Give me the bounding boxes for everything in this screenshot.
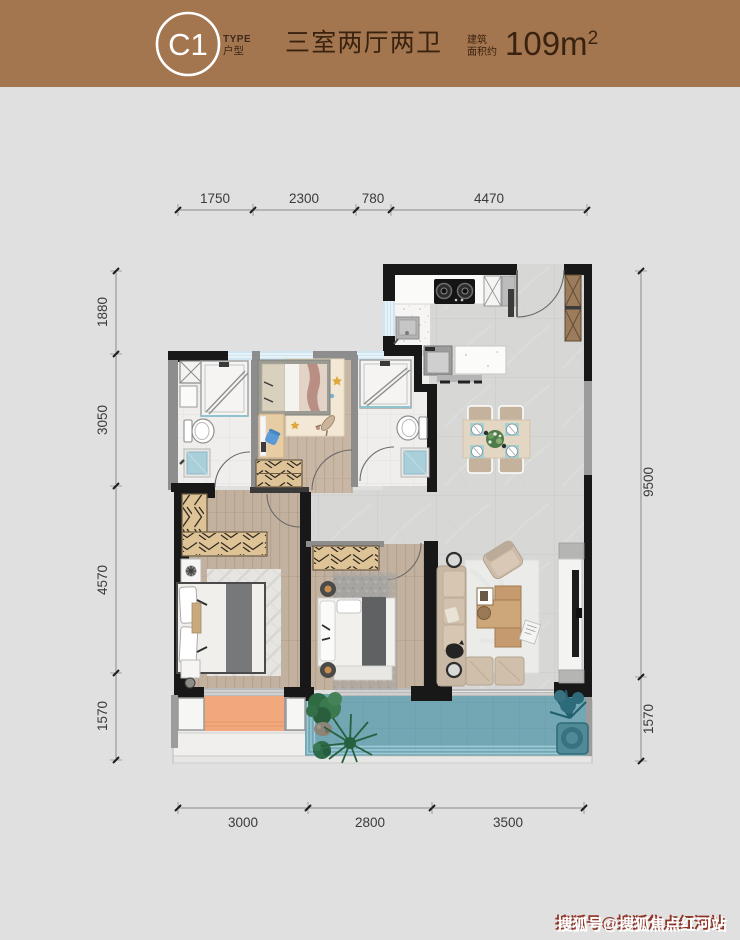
svg-text:面积约: 面积约 [467, 45, 497, 58]
svg-text:3000: 3000 [228, 815, 258, 830]
svg-text:3050: 3050 [95, 405, 110, 435]
svg-text:1570: 1570 [641, 704, 656, 734]
svg-text:2300: 2300 [289, 191, 319, 206]
svg-text:搜狐号@搜狐焦点红河站: 搜狐号@搜狐焦点红河站 [557, 915, 728, 934]
svg-text:1880: 1880 [95, 297, 110, 327]
svg-text:2800: 2800 [355, 815, 385, 830]
svg-text:1570: 1570 [95, 701, 110, 731]
svg-text:三室两厅两卫: 三室两厅两卫 [285, 29, 442, 57]
svg-text:建筑: 建筑 [467, 33, 487, 46]
svg-text:1750: 1750 [200, 191, 230, 206]
svg-text:C1: C1 [168, 27, 208, 62]
svg-text:780: 780 [362, 191, 385, 206]
svg-text:9500: 9500 [641, 467, 656, 497]
svg-text:户型: 户型 [223, 44, 244, 57]
svg-text:4470: 4470 [474, 191, 504, 206]
svg-text:3500: 3500 [493, 815, 523, 830]
svg-text:TYPE: TYPE [223, 34, 251, 45]
svg-text:109m2: 109m2 [505, 25, 598, 62]
svg-text:4570: 4570 [95, 565, 110, 595]
